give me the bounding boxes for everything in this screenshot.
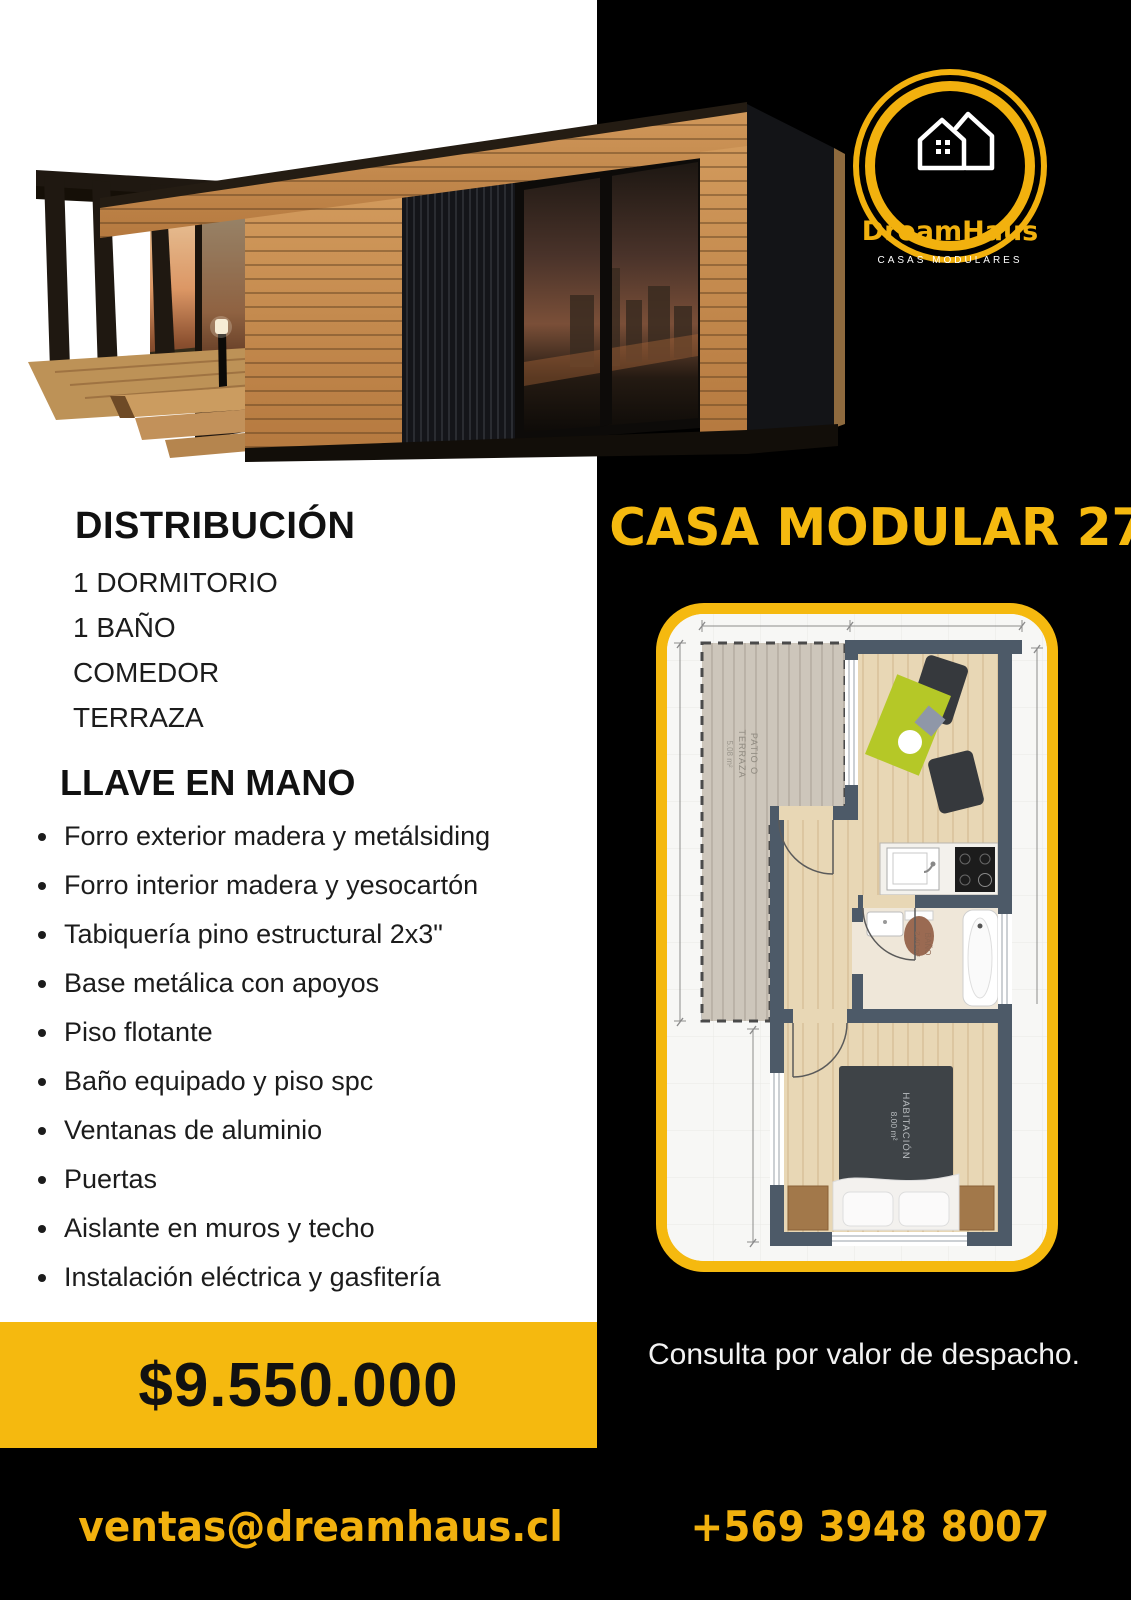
bullet-dot bbox=[38, 882, 46, 890]
distribution-item: 1 BAÑO bbox=[73, 605, 278, 650]
bullet-dot bbox=[38, 833, 46, 841]
bullet-dot bbox=[38, 931, 46, 939]
bullet-dot bbox=[38, 1176, 46, 1184]
terrace-label: PATIO O bbox=[749, 733, 759, 775]
product-title-text: CASA MODULAR 27M bbox=[609, 498, 1131, 558]
wood-wall-left-module bbox=[245, 196, 402, 452]
feature-item: Ventanas de aluminio bbox=[38, 1106, 583, 1155]
logo-brand-name: DreamHaus bbox=[862, 216, 1039, 247]
contact-phone-text[interactable]: +569 3948 8007 bbox=[691, 1502, 1050, 1551]
side-wall bbox=[747, 104, 845, 448]
feature-text: Instalación eléctrica y gasfitería bbox=[64, 1262, 441, 1292]
black-slat-wall bbox=[402, 181, 515, 446]
bedroom-label: HABITACIÓN bbox=[900, 1092, 911, 1159]
feature-text: Piso flotante bbox=[64, 1017, 213, 1047]
features-list: Forro exterior madera y metálsiding Forr… bbox=[38, 812, 583, 1302]
distribution-title: DISTRIBUCIÓN bbox=[75, 505, 355, 548]
contact-email[interactable]: ventas@dreamhaus.cl bbox=[50, 1502, 590, 1551]
brand-logo: DreamHaus CASAS MODULARES bbox=[838, 52, 1062, 284]
price-band: $9.550.000 bbox=[0, 1322, 597, 1448]
turnkey-title: LLAVE EN MANO bbox=[60, 762, 355, 804]
feature-text: Forro exterior madera y metálsiding bbox=[64, 821, 490, 851]
feature-item: Forro exterior madera y metálsiding bbox=[38, 812, 583, 861]
bedroom-area-label: 8.00 m² bbox=[889, 1112, 899, 1141]
distribution-list: 1 DORMITORIO 1 BAÑO COMEDOR TERRAZA bbox=[73, 560, 278, 740]
logo-tagline: CASAS MODULARES bbox=[877, 255, 1022, 266]
contact-phone[interactable]: +569 3948 8007 bbox=[660, 1502, 1080, 1551]
feature-text: Baño equipado y piso spc bbox=[64, 1066, 373, 1096]
distribution-item: COMEDOR bbox=[73, 650, 278, 695]
feature-item: Aislante en muros y techo bbox=[38, 1204, 583, 1253]
bullet-dot bbox=[38, 980, 46, 988]
feature-item: Piso flotante bbox=[38, 1008, 583, 1057]
feature-item: Instalación eléctrica y gasfitería bbox=[38, 1253, 583, 1302]
panoramic-window bbox=[515, 152, 700, 442]
feature-item: Forro interior madera y yesocartón bbox=[38, 861, 583, 910]
bullet-dot bbox=[38, 1225, 46, 1233]
feature-text: Aislante en muros y techo bbox=[64, 1213, 375, 1243]
feature-text: Base metálica con apoyos bbox=[64, 968, 379, 998]
terrace-area-label: 5.08 m² bbox=[725, 740, 734, 767]
bullet-dot bbox=[38, 1127, 46, 1135]
distribution-item: TERRAZA bbox=[73, 695, 278, 740]
contact-email-text[interactable]: ventas@dreamhaus.cl bbox=[78, 1502, 562, 1551]
feature-item: Baño equipado y piso spc bbox=[38, 1057, 583, 1106]
flyer-page: DreamHaus CASAS MODULARES DISTRIBUCIÓN 1… bbox=[0, 0, 1131, 1600]
house-icon bbox=[920, 114, 992, 168]
feature-text: Puertas bbox=[64, 1164, 157, 1194]
feature-item: Tabiquería pino estructural 2x3" bbox=[38, 910, 583, 959]
feature-item: Puertas bbox=[38, 1155, 583, 1204]
terrace-label: TERRAZA bbox=[737, 729, 747, 778]
bullet-dot bbox=[38, 1078, 46, 1086]
floorplan-frame: PATIO O TERRAZA 5.08 m² BAÑO 2.40 m² HAB… bbox=[656, 603, 1058, 1272]
distribution-item: 1 DORMITORIO bbox=[73, 560, 278, 605]
price-amount: $9.550.000 bbox=[138, 1350, 458, 1421]
bullet-dot bbox=[38, 1029, 46, 1037]
bullet-dot bbox=[38, 1274, 46, 1282]
floorplan-drawing: PATIO O TERRAZA 5.08 m² BAÑO 2.40 m² HAB… bbox=[667, 614, 1047, 1261]
bath-label: BAÑO bbox=[923, 933, 932, 956]
product-title: CASA MODULAR 27M bbox=[597, 498, 1131, 558]
feature-text: Tabiquería pino estructural 2x3" bbox=[64, 919, 443, 949]
wood-corner-band bbox=[700, 146, 747, 438]
kitchen-counter bbox=[880, 843, 998, 895]
shipping-note: Consulta por valor de despacho. bbox=[597, 1338, 1131, 1372]
feature-text: Forro interior madera y yesocartón bbox=[64, 870, 478, 900]
feature-item: Base metálica con apoyos bbox=[38, 959, 583, 1008]
feature-text: Ventanas de aluminio bbox=[64, 1115, 322, 1145]
bath-area-label: 2.40 m² bbox=[913, 931, 922, 957]
